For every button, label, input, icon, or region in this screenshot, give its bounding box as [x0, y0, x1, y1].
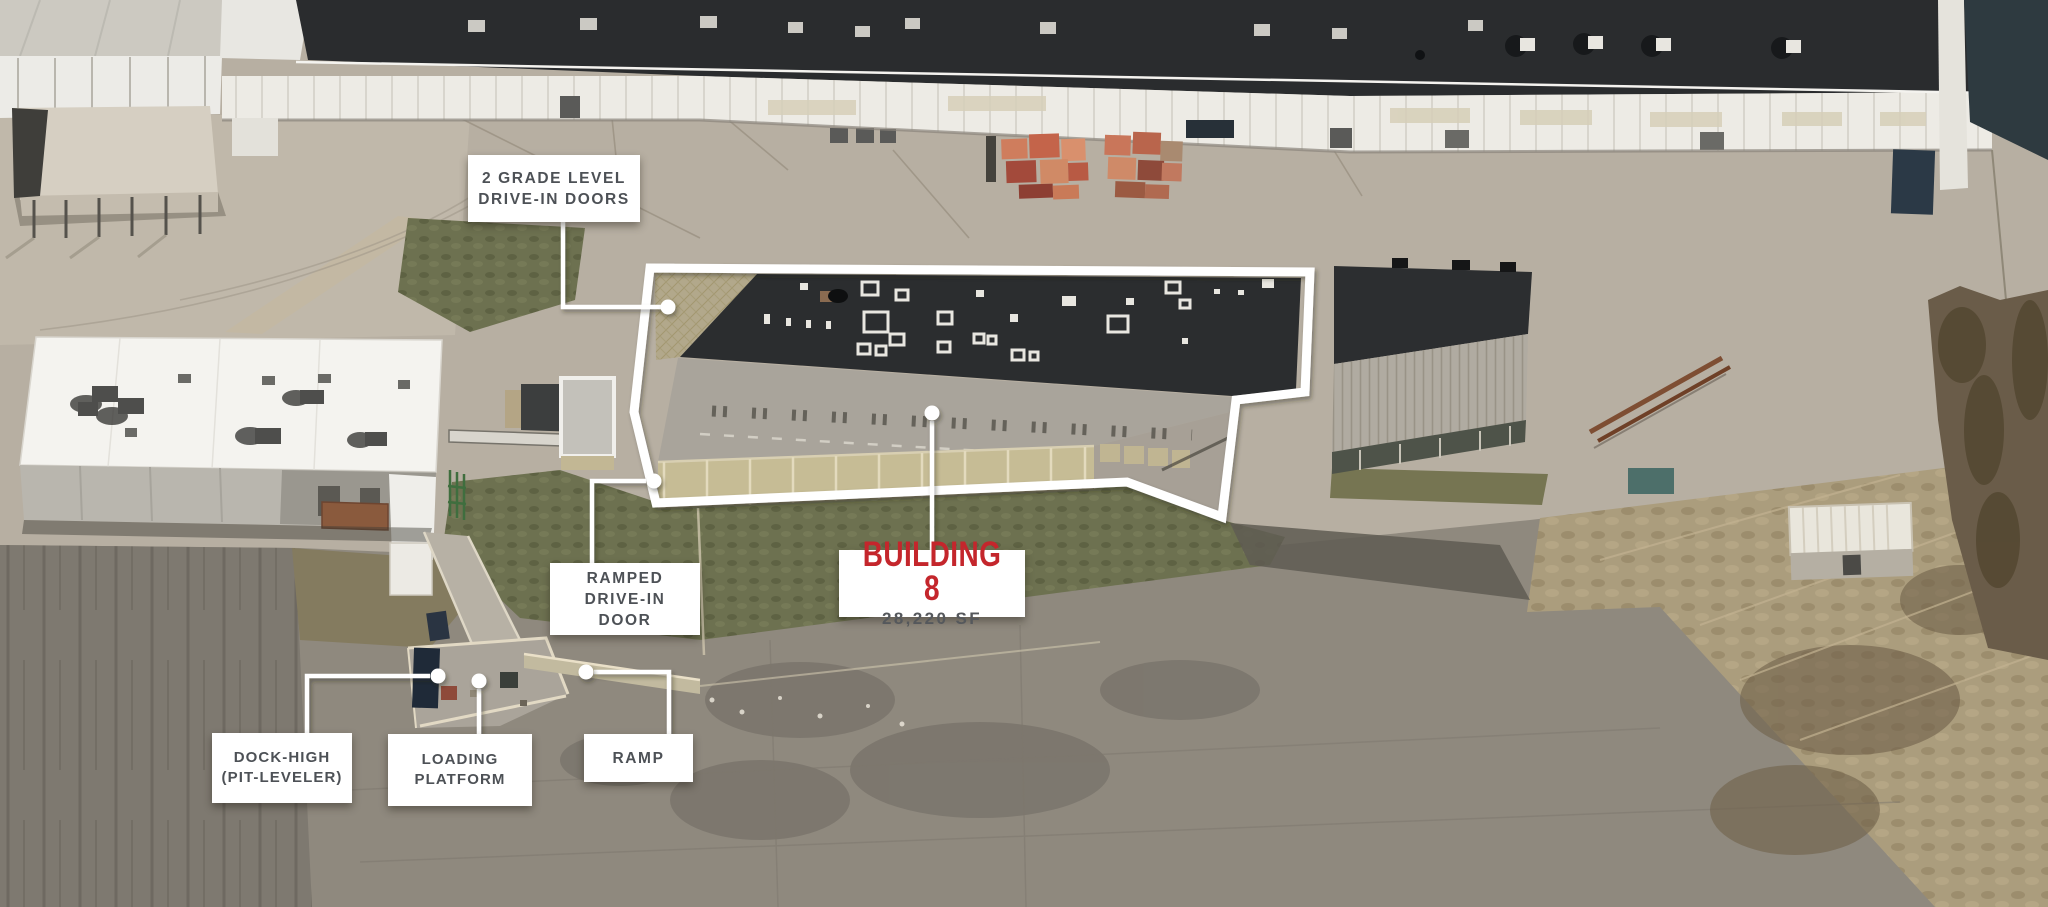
callout-label: DOCK-HIGH: [234, 748, 331, 768]
callout-ramped-drive-in-door: RAMPED DRIVE-IN DOOR: [550, 563, 700, 635]
building-8: [655, 272, 1301, 513]
callout-label: DRIVE-IN DOORS: [478, 189, 630, 210]
callout-grade-level-doors: 2 GRADE LEVEL DRIVE-IN DOORS: [468, 155, 640, 222]
south-east-hut: [1789, 503, 1913, 580]
callout-label: DOOR: [599, 610, 652, 631]
callout-label: (PIT-LEVELER): [222, 768, 343, 788]
teal-bin: [1628, 468, 1674, 494]
building-name: BUILDING 8: [858, 538, 1007, 606]
building-area: 28,220 SF: [882, 609, 982, 629]
callout-label: LOADING: [422, 750, 499, 770]
aerial-property-flyer: 2 GRADE LEVEL DRIVE-IN DOORS RAMPED DRIV…: [0, 0, 2048, 907]
callout-ramp: RAMP: [584, 734, 693, 782]
callout-label: DRIVE-IN: [585, 589, 666, 610]
trailer: [426, 611, 450, 642]
dumpster: [1891, 149, 1935, 214]
brown-canopy: [322, 502, 388, 530]
callout-label: RAMP: [612, 748, 664, 769]
callout-loading-platform: LOADING PLATFORM: [388, 734, 532, 806]
east-building: [1332, 258, 1532, 474]
callout-label: PLATFORM: [414, 770, 505, 790]
callout-label: 2 GRADE LEVEL: [482, 168, 626, 189]
callout-dock-high: DOCK-HIGH (PIT-LEVELER): [212, 733, 352, 803]
callout-label: RAMPED: [587, 568, 664, 589]
callout-building-8: BUILDING 8 28,220 SF: [839, 550, 1025, 617]
small-white-hut: [561, 378, 614, 456]
